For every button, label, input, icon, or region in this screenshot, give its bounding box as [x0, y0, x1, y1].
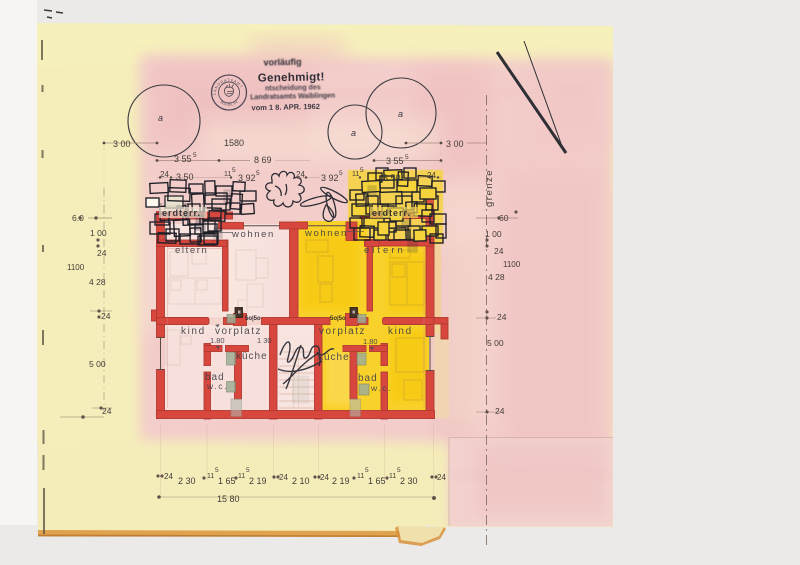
svg-text:grenze: grenze — [484, 169, 495, 207]
svg-text:2 19: 2 19 — [332, 476, 350, 486]
svg-text:3 55: 3 55 — [386, 156, 404, 166]
svg-text:15 80: 15 80 — [217, 494, 240, 504]
svg-text:5: 5 — [397, 467, 401, 474]
svg-text:kind: kind — [388, 326, 413, 337]
svg-text:1 30: 1 30 — [257, 336, 272, 345]
svg-text:5o|5o: 5o|5o — [245, 316, 261, 322]
svg-text:3 92: 3 92 — [321, 173, 339, 183]
svg-text:5 00: 5 00 — [487, 338, 504, 348]
svg-text:wohnen: wohnen — [304, 228, 348, 239]
svg-text:5: 5 — [232, 167, 236, 174]
svg-text:vorläufig: vorläufig — [263, 57, 301, 68]
svg-text:a: a — [158, 113, 163, 123]
svg-text:Genehmigt!: Genehmigt! — [258, 71, 325, 84]
svg-text:5: 5 — [360, 167, 364, 174]
svg-text:11: 11 — [352, 171, 359, 178]
svg-text:24: 24 — [320, 473, 329, 482]
svg-text:24: 24 — [97, 248, 107, 258]
svg-text:3 50: 3 50 — [383, 173, 401, 183]
svg-text:11: 11 — [389, 473, 396, 480]
svg-text:ntscheidung des: ntscheidung des — [265, 84, 321, 92]
svg-text:1.80: 1.80 — [210, 336, 225, 345]
svg-text:4 28: 4 28 — [488, 272, 505, 282]
svg-text:24: 24 — [494, 246, 504, 256]
svg-text:erdterr.: erdterr. — [372, 208, 411, 218]
svg-text:5: 5 — [215, 467, 219, 474]
svg-text:11: 11 — [238, 473, 245, 480]
svg-text:2 30: 2 30 — [178, 476, 196, 486]
svg-text:5: 5 — [405, 154, 409, 161]
svg-text:2 19: 2 19 — [249, 476, 267, 486]
svg-text:24: 24 — [495, 406, 505, 416]
svg-text:eltern: eltern — [175, 245, 208, 256]
svg-text:küche: küche — [318, 352, 350, 363]
svg-text:vom 1 8. APR. 1962: vom 1 8. APR. 1962 — [251, 102, 320, 112]
svg-text:5: 5 — [339, 170, 343, 177]
svg-text:6.0: 6.0 — [72, 213, 84, 223]
svg-text:3 50: 3 50 — [176, 172, 194, 182]
svg-text:1580: 1580 — [224, 138, 244, 148]
svg-text:11: 11 — [207, 473, 214, 480]
svg-text:24: 24 — [427, 171, 436, 180]
svg-text:5: 5 — [365, 467, 369, 474]
svg-text:1100: 1100 — [67, 263, 85, 272]
svg-text:w.c.: w.c. — [206, 381, 228, 391]
svg-text:2 30: 2 30 — [400, 476, 418, 486]
svg-text:kind: kind — [181, 326, 206, 337]
svg-text:24: 24 — [101, 311, 111, 321]
svg-text:3 55: 3 55 — [174, 154, 192, 164]
svg-text:wohnen: wohnen — [231, 229, 275, 240]
svg-text:24: 24 — [437, 473, 446, 482]
svg-text:5 00: 5 00 — [89, 359, 106, 369]
svg-text:24: 24 — [164, 472, 173, 481]
svg-text:11: 11 — [357, 473, 364, 480]
svg-text:w.c.: w.c. — [370, 383, 392, 393]
svg-text:24: 24 — [296, 170, 305, 179]
svg-text:24: 24 — [497, 312, 507, 322]
svg-text:5o|5o: 5o|5o — [330, 316, 346, 322]
svg-text:3 00: 3 00 — [446, 139, 464, 149]
svg-text:1 00: 1 00 — [485, 229, 502, 239]
svg-text:5: 5 — [256, 170, 260, 177]
svg-text:1 65: 1 65 — [368, 476, 386, 486]
svg-text:1.80: 1.80 — [363, 337, 378, 346]
svg-text:2 10: 2 10 — [292, 476, 310, 486]
svg-text:erdterr.: erdterr. — [162, 208, 201, 218]
svg-text:5: 5 — [193, 152, 197, 159]
svg-text:5: 5 — [246, 467, 250, 474]
svg-text:eltern: eltern — [364, 245, 406, 256]
svg-text:a: a — [398, 109, 403, 119]
svg-text:4 28: 4 28 — [89, 277, 106, 287]
svg-text:11: 11 — [224, 171, 231, 178]
svg-text:1 65: 1 65 — [218, 476, 236, 486]
svg-text:küche: küche — [236, 351, 268, 362]
svg-text:a: a — [351, 128, 356, 138]
svg-text:24: 24 — [279, 473, 288, 482]
svg-text:vorplatz: vorplatz — [319, 326, 366, 337]
svg-text:24: 24 — [102, 406, 112, 416]
svg-text:24: 24 — [160, 170, 169, 179]
svg-text:3 92: 3 92 — [238, 173, 256, 183]
svg-text:8 69: 8 69 — [254, 155, 272, 165]
svg-text:3 00: 3 00 — [113, 139, 131, 149]
svg-text:1100: 1100 — [503, 260, 521, 269]
